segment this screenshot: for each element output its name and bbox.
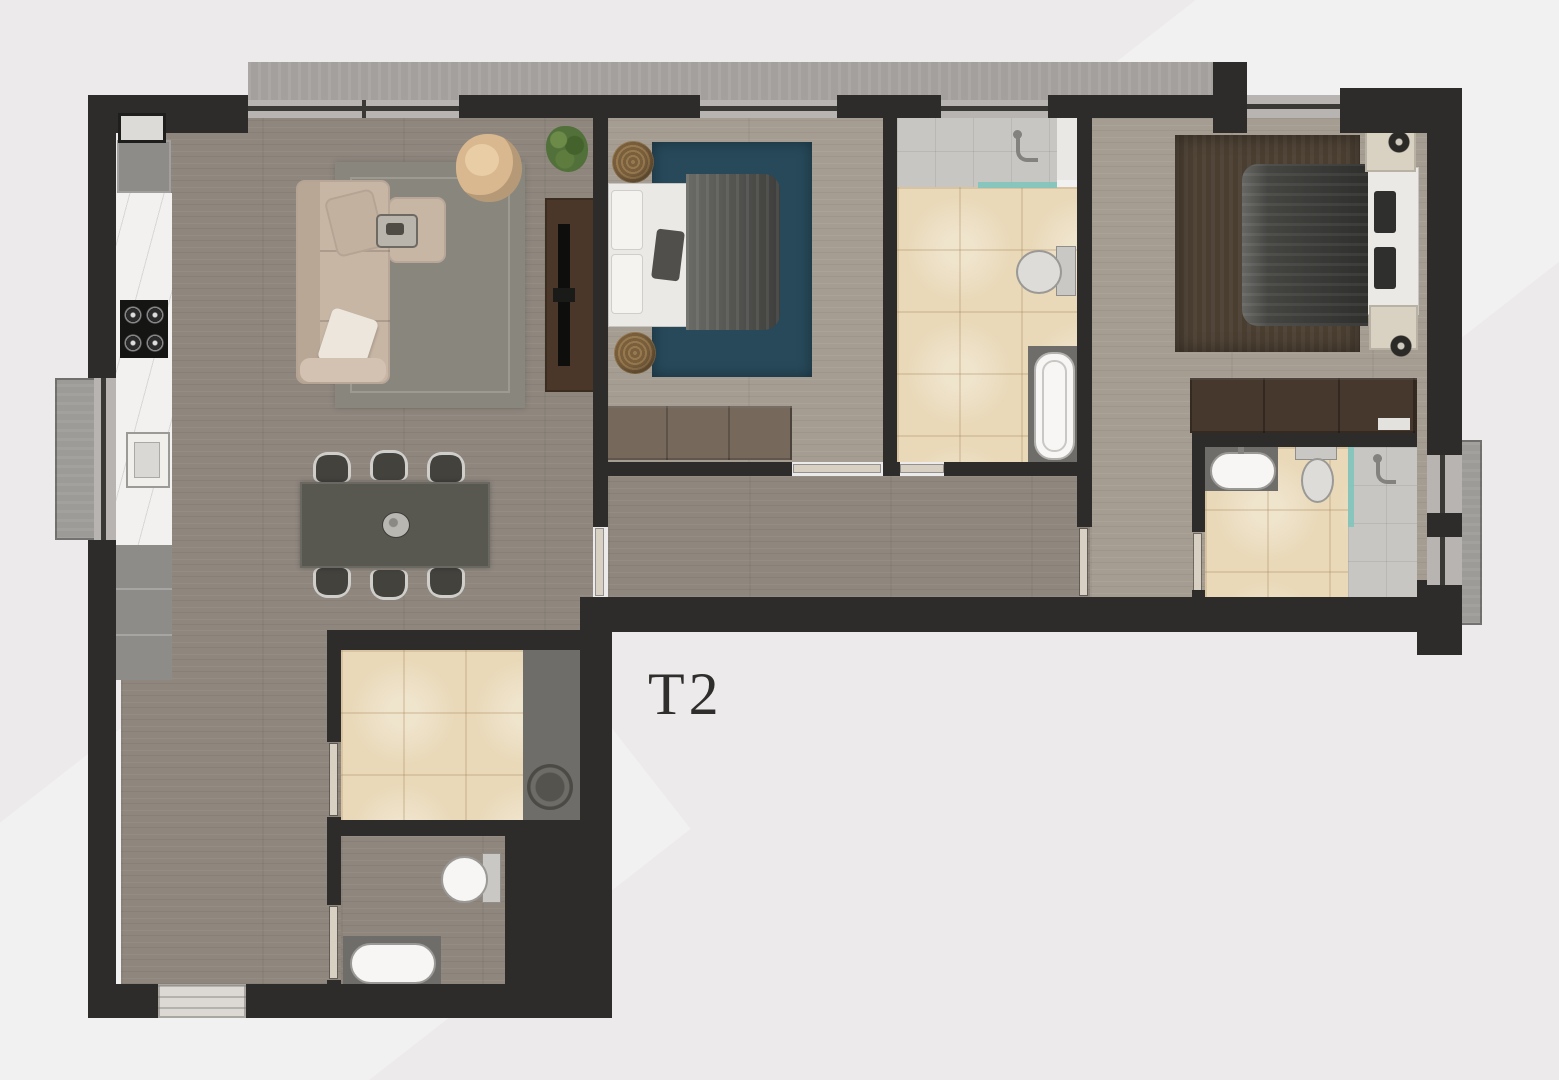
wall <box>88 95 116 378</box>
wall <box>1192 447 1205 532</box>
coffee-tray <box>376 214 418 248</box>
door-opening <box>330 907 337 978</box>
dining-chair-icon <box>370 570 408 600</box>
toilet-icon <box>1295 445 1335 503</box>
wall <box>88 540 116 1018</box>
door-opening <box>330 744 337 815</box>
window-mullion <box>362 100 366 118</box>
wall <box>1427 513 1462 537</box>
door-opening <box>901 465 943 472</box>
floor-plan-canvas: T2 <box>0 0 1559 1080</box>
bed-duvet <box>686 174 780 330</box>
window-glass-line <box>700 106 837 111</box>
rattan-pouf-icon <box>614 332 656 374</box>
dining-table-icon <box>300 482 490 568</box>
wall <box>327 980 341 1018</box>
door-opening <box>1080 529 1087 595</box>
dining-chair-icon <box>313 568 351 598</box>
wardrobe-icon <box>1190 378 1417 433</box>
table-centerpiece <box>382 512 410 538</box>
bed-pillow <box>611 190 643 250</box>
wall <box>327 630 580 650</box>
door-opening <box>596 529 603 595</box>
tv-stand <box>553 288 575 302</box>
kitchen-counter-icon <box>116 193 172 545</box>
wall <box>1048 95 1213 118</box>
wall <box>883 462 900 476</box>
sofa-backrest <box>296 180 320 384</box>
laundry-basin-icon <box>527 764 573 810</box>
wall <box>1213 62 1247 133</box>
dining-chair-icon <box>370 450 408 480</box>
armchair-icon <box>456 134 522 202</box>
cooktop-icon <box>120 300 168 358</box>
bed-linen <box>1362 167 1419 315</box>
wardrobe-handle <box>1378 418 1410 430</box>
shower-niche <box>1057 115 1077 180</box>
window-glass-line <box>101 378 106 540</box>
toilet-icon <box>441 852 501 902</box>
window-glass-line <box>1440 537 1445 585</box>
toilet-bowl <box>1016 250 1062 294</box>
kitchen-sink-icon <box>126 432 170 488</box>
dining-chair-icon <box>313 452 351 482</box>
corridor-floor <box>608 476 1090 597</box>
bathtub-icon <box>1034 352 1075 460</box>
wall <box>1417 580 1462 655</box>
bed-pillow <box>1374 191 1396 233</box>
window-glass-line <box>248 106 459 111</box>
shower-icon <box>1376 460 1396 484</box>
kitchen-appliance <box>118 113 166 143</box>
wall <box>505 836 612 984</box>
door-opening <box>794 465 880 472</box>
shower-glass <box>978 182 1057 188</box>
kitchen-cabinets <box>116 545 172 680</box>
tray-decor <box>386 223 404 235</box>
bed-pillow <box>611 254 643 314</box>
armchair-cushion <box>465 144 499 176</box>
tv-console-icon <box>545 198 597 392</box>
fridge-icon <box>117 140 171 193</box>
wall <box>593 462 792 476</box>
balcony-left-floor <box>55 378 97 540</box>
table-lamp-icon <box>1388 333 1414 359</box>
wall <box>1077 115 1092 527</box>
dining-chair-icon <box>427 568 465 598</box>
unit-label: T2 <box>648 664 723 724</box>
window-glass-line <box>1247 104 1340 109</box>
bed-pillow <box>1374 247 1396 289</box>
wall <box>1427 88 1462 455</box>
toilet-bowl <box>1301 458 1334 503</box>
double-bed-icon <box>608 174 780 330</box>
wall <box>459 95 700 118</box>
wall <box>580 597 1462 632</box>
double-bed-icon <box>1242 164 1417 326</box>
shower-glass <box>1348 447 1354 527</box>
wall <box>944 462 1090 476</box>
window-glass-line <box>1440 455 1445 513</box>
door-opening <box>1194 534 1201 590</box>
plant-icon <box>546 126 588 172</box>
washbasin-icon <box>1210 452 1276 490</box>
window-glass-line <box>941 106 1048 111</box>
dining-chair-icon <box>427 452 465 482</box>
toilet-icon <box>1016 246 1076 294</box>
sofa-icon <box>296 180 456 388</box>
duvet-fold <box>1242 164 1268 326</box>
bathtub-inner <box>1042 360 1067 452</box>
wall <box>1192 590 1205 598</box>
wall <box>327 650 341 742</box>
wall <box>1192 433 1417 447</box>
sofa-end-cushion <box>300 358 386 382</box>
toilet-bowl <box>441 856 488 903</box>
door-mat-icon <box>158 984 246 1018</box>
entry-hall-floor <box>121 630 341 984</box>
wall <box>883 115 897 476</box>
wall <box>327 820 580 836</box>
sink-basin <box>134 442 160 478</box>
wardrobe-icon <box>606 406 792 460</box>
washbasin-icon <box>350 943 436 984</box>
shower-icon <box>1016 136 1038 162</box>
